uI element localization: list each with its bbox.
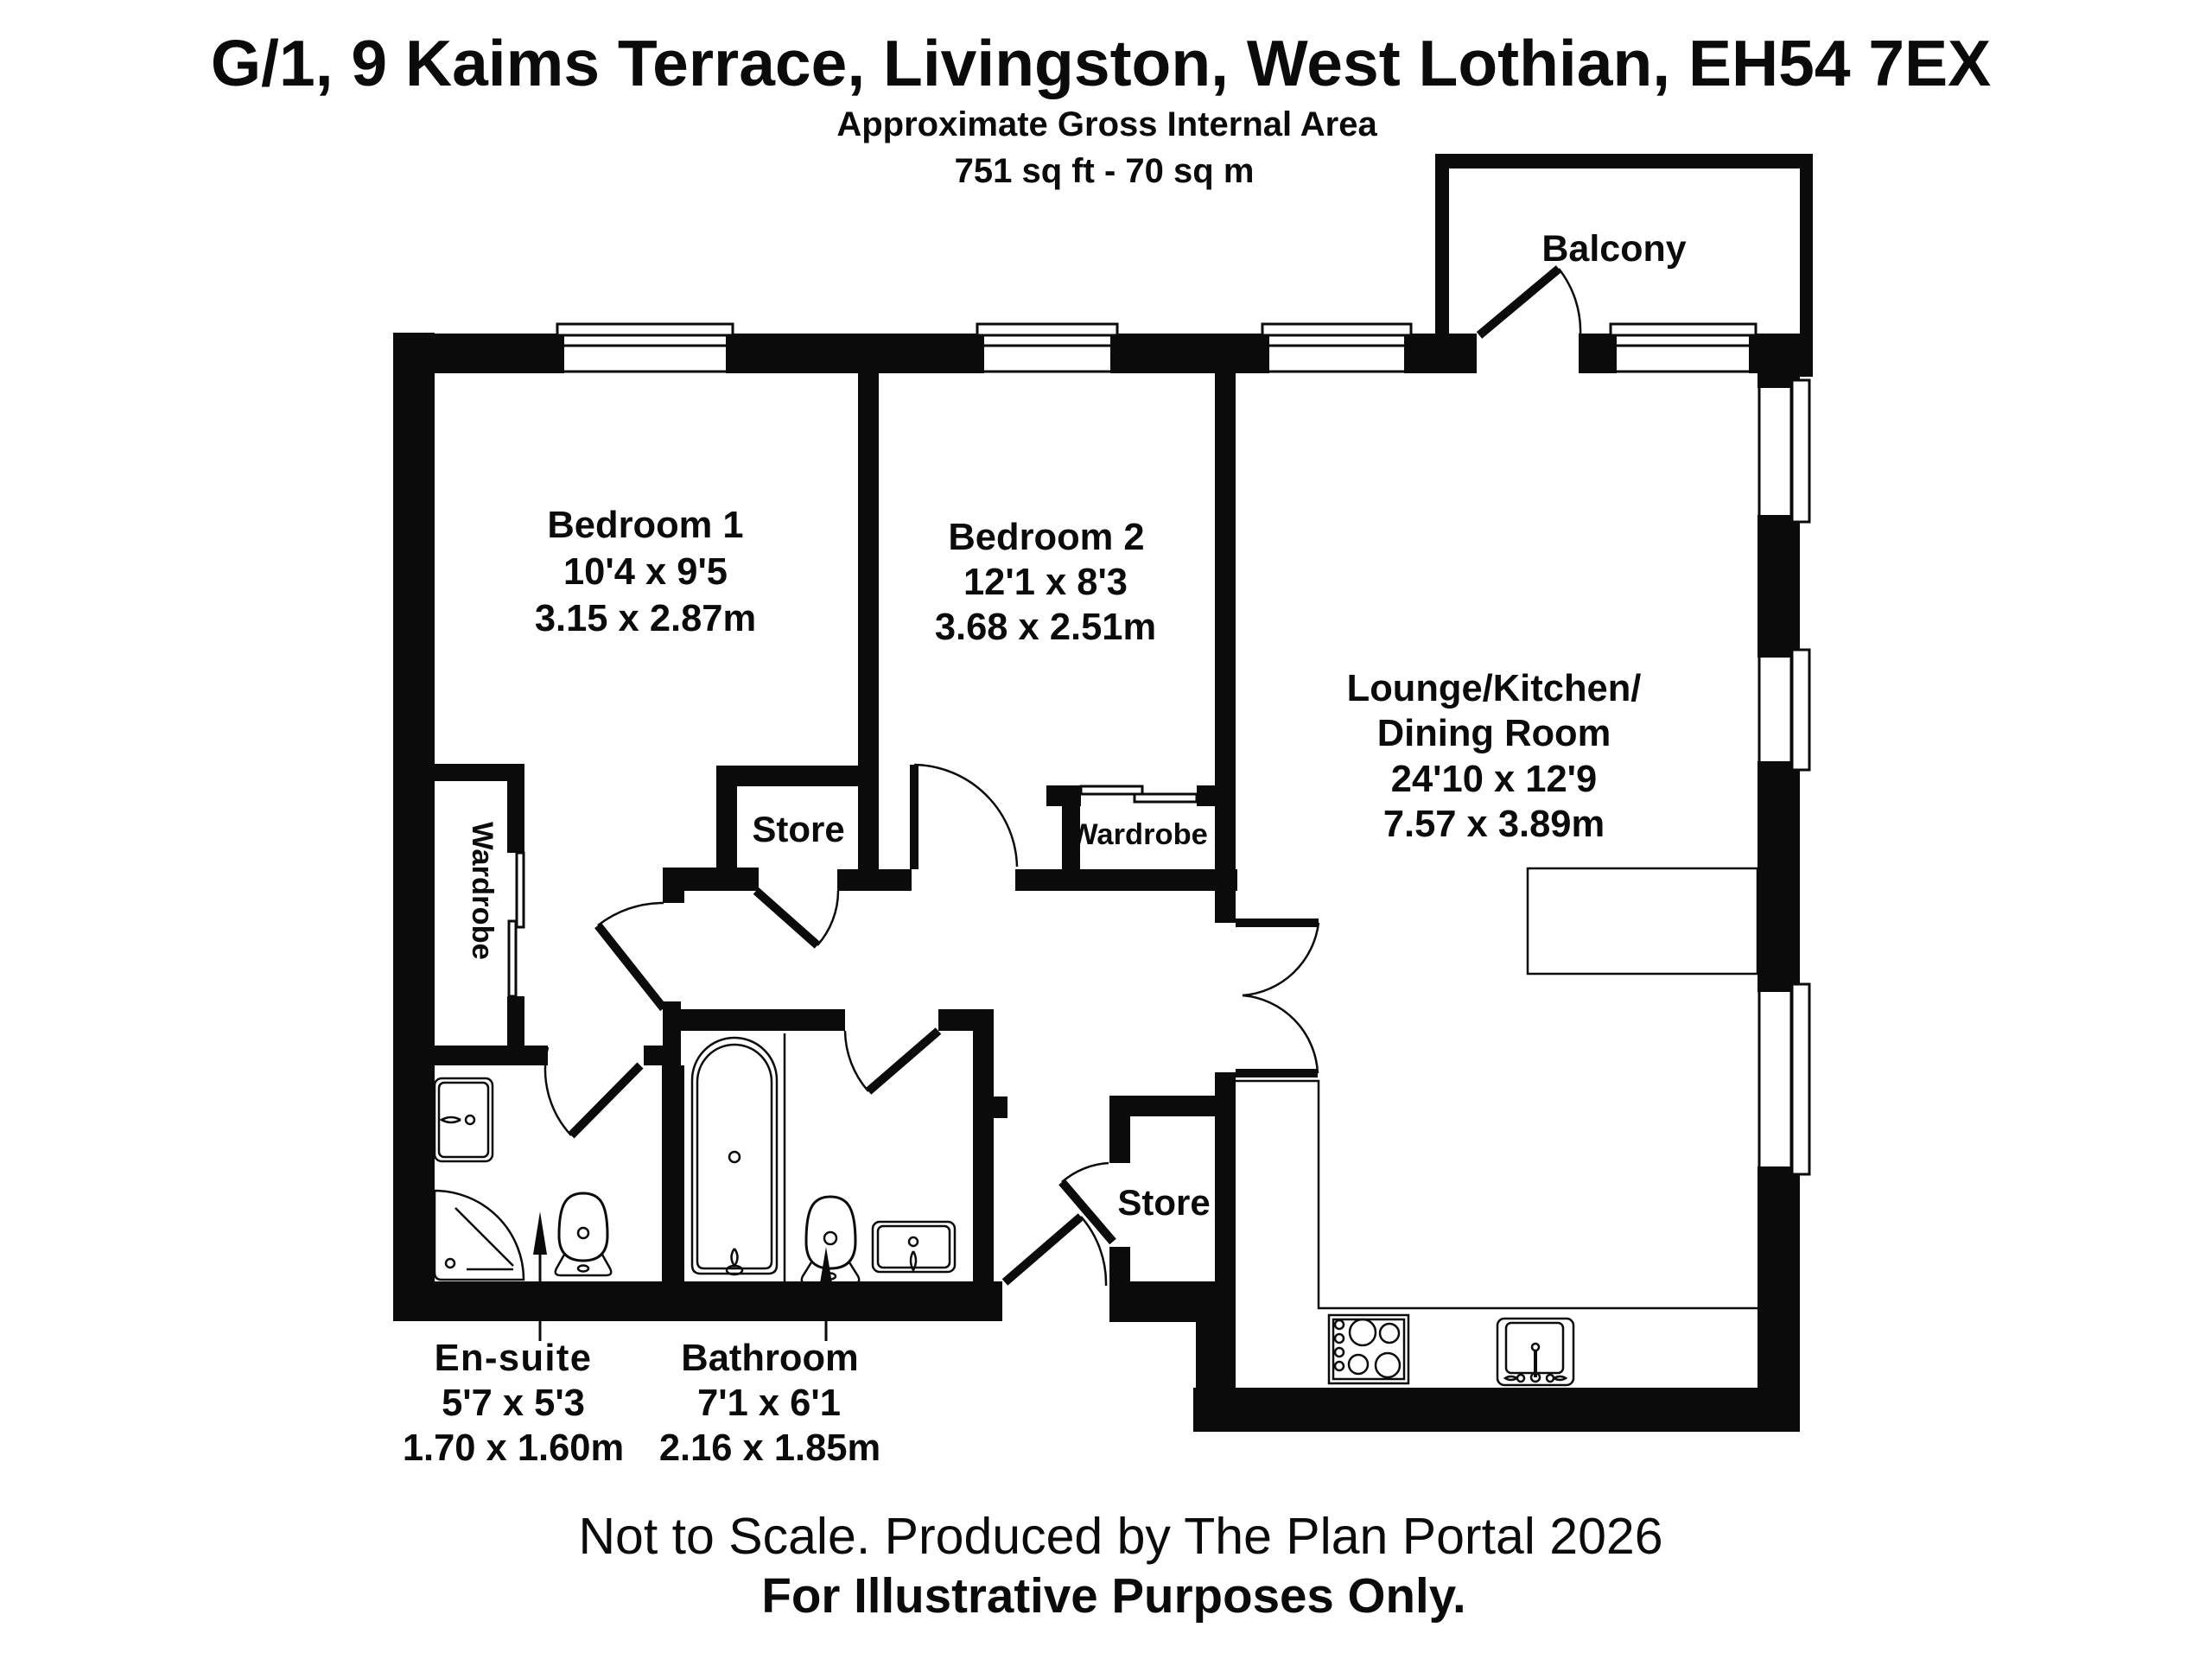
svg-text:Approximate Gross Internal Are: Approximate Gross Internal Area	[836, 105, 1377, 143]
svg-text:Lounge/Kitchen/: Lounge/Kitchen/	[1347, 668, 1642, 709]
svg-text:7'1 x 6'1: 7'1 x 6'1	[697, 1382, 841, 1424]
svg-text:7.57 x 3.89m: 7.57 x 3.89m	[1383, 804, 1605, 845]
svg-text:Bedroom 2: Bedroom 2	[948, 517, 1144, 558]
svg-text:10'4 x 9'5: 10'4 x 9'5	[563, 551, 728, 593]
svg-text:Bedroom 1: Bedroom 1	[547, 505, 743, 546]
svg-text:3.15 x 2.87m: 3.15 x 2.87m	[535, 598, 756, 639]
svg-text:3.68 x 2.51m: 3.68 x 2.51m	[935, 607, 1156, 648]
svg-text:1.70 x 1.60m: 1.70 x 1.60m	[403, 1427, 624, 1469]
svg-text:Store: Store	[752, 809, 844, 849]
svg-text:Wardrobe: Wardrobe	[1070, 818, 1208, 851]
svg-text:For Illustrative Purposes Only: For Illustrative Purposes Only.	[761, 1568, 1465, 1623]
svg-text:Balcony: Balcony	[1541, 228, 1686, 270]
svg-text:G/1, 9 Kaims Terrace, Livingst: G/1, 9 Kaims Terrace, Livingston, West L…	[211, 27, 1991, 99]
svg-text:5'7 x 5'3: 5'7 x 5'3	[442, 1382, 585, 1424]
svg-text:12'1 x 8'3: 12'1 x 8'3	[963, 562, 1128, 603]
svg-text:Bathroom: Bathroom	[681, 1338, 858, 1379]
svg-text:751 sq ft - 70 sq m: 751 sq ft - 70 sq m	[955, 152, 1255, 190]
svg-text:Wardrobe: Wardrobe	[466, 822, 499, 960]
svg-text:En-suite: En-suite	[435, 1338, 593, 1379]
svg-text:2.16 x 1.85m: 2.16 x 1.85m	[659, 1427, 880, 1469]
svg-text:Dining Room: Dining Room	[1377, 713, 1611, 754]
svg-text:Store: Store	[1117, 1182, 1210, 1223]
svg-text:Not to Scale. Produced by The: Not to Scale. Produced by The Plan Porta…	[578, 1508, 1662, 1565]
svg-text:24'10 x 12'9: 24'10 x 12'9	[1391, 759, 1597, 800]
